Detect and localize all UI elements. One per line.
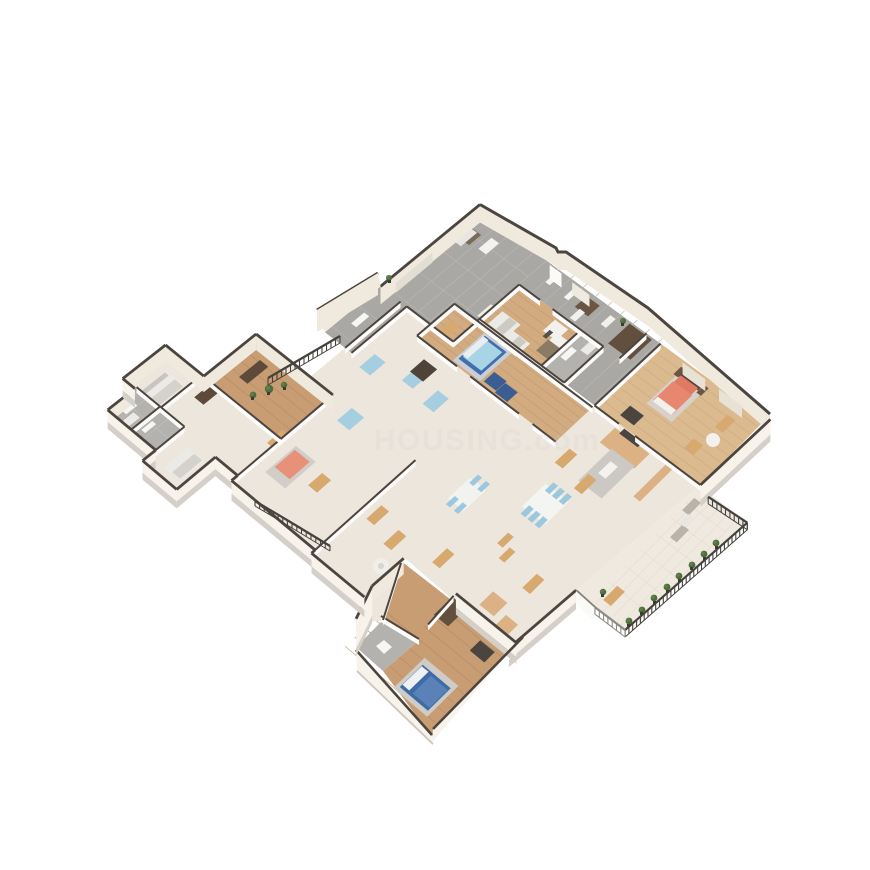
svg-text:HOUSING.com: HOUSING.com bbox=[374, 424, 601, 457]
